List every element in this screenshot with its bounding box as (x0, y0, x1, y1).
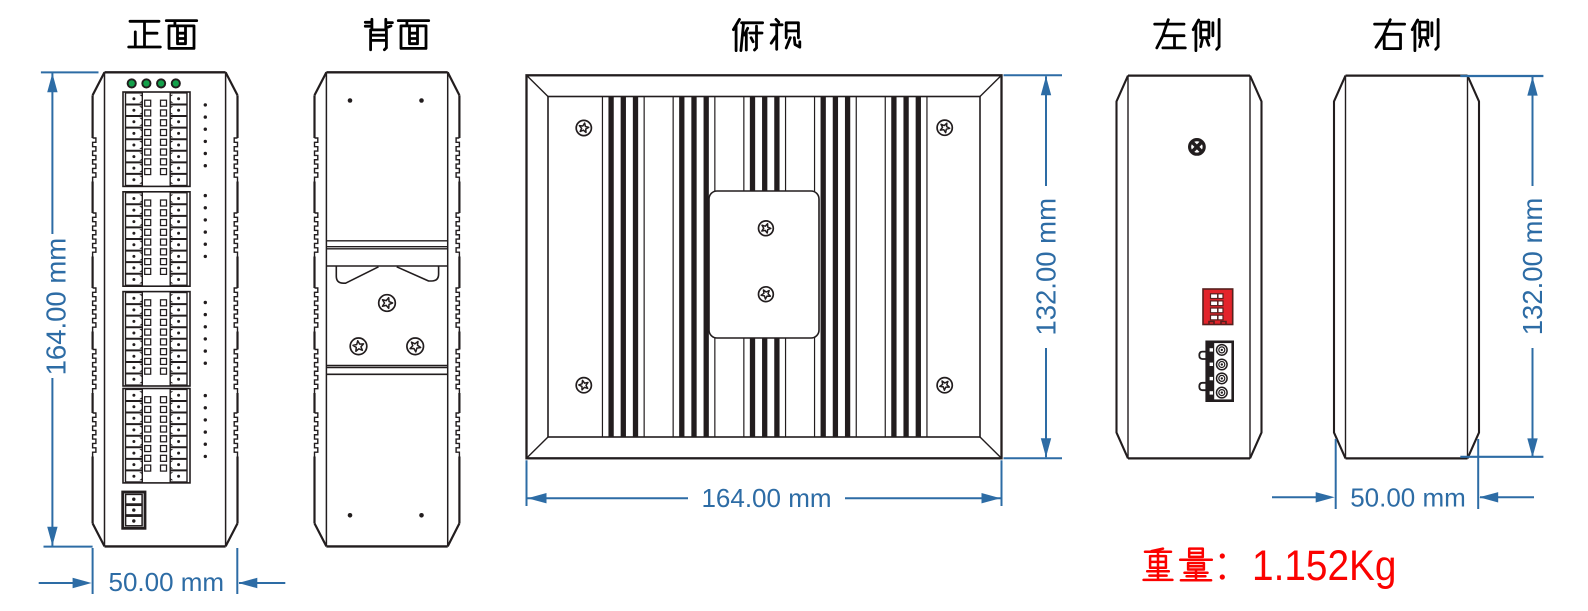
svg-text:164.00 mm: 164.00 mm (41, 238, 72, 376)
svg-text:164.00 mm: 164.00 mm (701, 483, 831, 513)
svg-text:132.00 mm: 132.00 mm (1030, 198, 1061, 336)
svg-text:132.00 mm: 132.00 mm (1517, 198, 1548, 336)
svg-text:50.00 mm: 50.00 mm (1350, 482, 1466, 512)
svg-text:50.00 mm: 50.00 mm (108, 567, 224, 597)
svg-text:1.152Kg: 1.152Kg (1252, 542, 1397, 590)
